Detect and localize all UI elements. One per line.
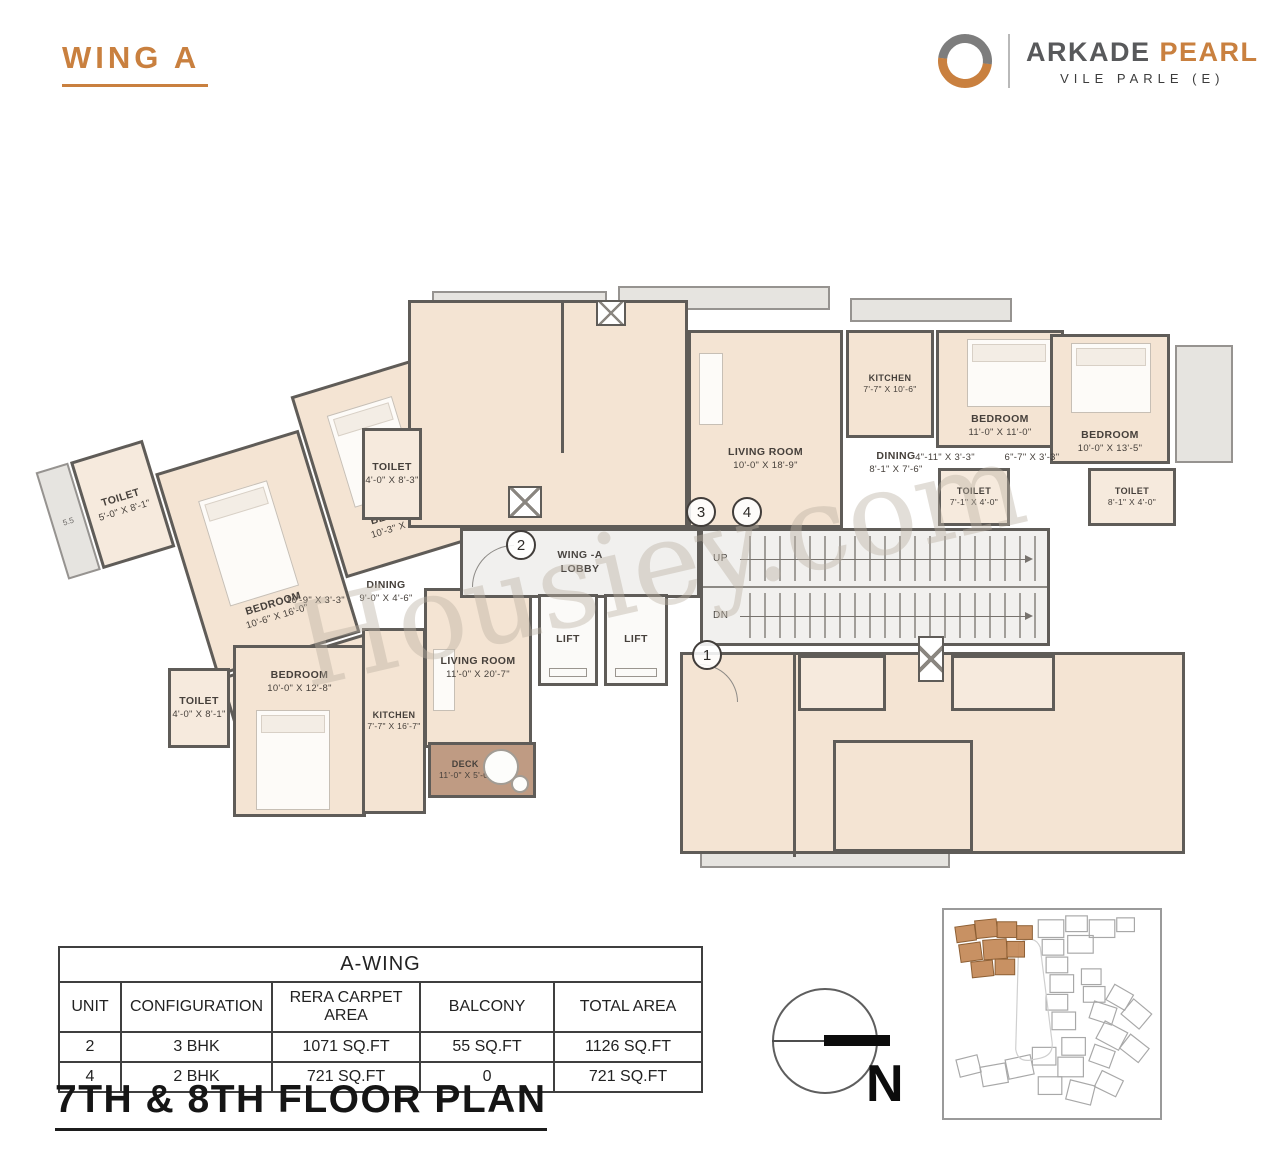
- room-kitchen: KITCHEN7'-7" X 16'-7": [362, 628, 426, 814]
- area-table: A-WING UNIT CONFIGURATION RERA CARPET AR…: [58, 946, 703, 1093]
- room-dims: 7'-1" X 4'-0": [950, 497, 998, 508]
- room-dims: 8'-1" X 4'-0": [1108, 497, 1156, 508]
- staircase: UP DN: [700, 528, 1050, 646]
- balcony-ledge: [1175, 345, 1233, 463]
- sofa-icon: [699, 353, 723, 425]
- cell-balcony: 55 SQ.FT: [420, 1032, 554, 1062]
- room-bedroom: BEDROOM10'-0" X 12'-8": [233, 645, 366, 817]
- lobby-label: WING -A: [557, 549, 602, 563]
- dn-label: DN: [713, 610, 728, 621]
- room-label: TOILET: [172, 695, 225, 709]
- site-key-plan: [942, 908, 1162, 1120]
- brand-text: ARKADE PEARL VILE PARLE (E): [1026, 37, 1259, 86]
- room-dims: 6"-7" X 3'-3": [1005, 452, 1060, 464]
- interior-room: [833, 740, 973, 852]
- lift-2: LIFT: [604, 594, 668, 686]
- bed-icon: [198, 480, 299, 606]
- duct-shaft-icon: [596, 300, 626, 326]
- up-label: UP: [713, 553, 728, 564]
- room-dims: 11'-0" X 20'-7": [441, 669, 516, 681]
- room-label: TOILET: [365, 461, 418, 475]
- room-label: TOILET: [1108, 486, 1156, 498]
- compass-needle: [824, 1035, 890, 1046]
- room-label: KITCHEN: [863, 373, 916, 385]
- room-dims: 4'-0" X 8'-1": [172, 709, 225, 721]
- unit-marker-1: 1: [692, 640, 722, 670]
- cell-total-area: 1126 SQ.FT: [554, 1032, 702, 1062]
- stair-flight-up: UP: [703, 531, 1047, 586]
- bed-icon: [967, 339, 1051, 407]
- compass-icon: [772, 988, 878, 1094]
- room-dims: 10'-0" X 13'-5": [1078, 443, 1143, 455]
- brand-name-secondary: PEARL: [1160, 37, 1259, 67]
- col-header-unit: UNIT: [59, 982, 121, 1032]
- room-living: LIVING ROOM10'-0" X 18'-9": [688, 330, 843, 528]
- north-label: N: [866, 1054, 904, 1114]
- room-label: TOILET: [950, 486, 998, 498]
- unit-marker-4: 4: [732, 497, 762, 527]
- table-row: 2 3 BHK 1071 SQ.FT 55 SQ.FT 1126 SQ.FT: [59, 1032, 702, 1062]
- logo-divider: [1008, 34, 1010, 88]
- room-toilet: TOILET7'-1" X 4'-0": [938, 468, 1010, 526]
- table-title: A-WING: [59, 947, 702, 982]
- room-dims: 4'-0" X 8'-3": [365, 475, 418, 487]
- brand-name: ARKADE PEARL: [1026, 37, 1259, 68]
- duct-shaft-icon: [918, 636, 944, 682]
- col-header-balcony: BALCONY: [420, 982, 554, 1032]
- bed-icon: [1071, 343, 1151, 413]
- room-bedroom: BEDROOM11'-0" X 11'-0": [936, 330, 1064, 448]
- room-deck: DECK11'-0" X 5'-0": [428, 742, 536, 798]
- lift-label: LIFT: [556, 633, 580, 647]
- cell-rera-area: 1071 SQ.FT: [272, 1032, 420, 1062]
- stair-steps: [736, 536, 1037, 581]
- room-unlabeled: [408, 300, 688, 528]
- brand-name-primary: ARKADE: [1026, 37, 1151, 67]
- balcony-ledge: [700, 852, 950, 868]
- room-label: DINING: [359, 579, 412, 593]
- interior-wall: [793, 655, 796, 857]
- room-dims: 7'-7" X 10'-6": [863, 384, 916, 395]
- room-label: LIVING ROOM: [728, 446, 803, 460]
- stair-steps: [736, 593, 1037, 638]
- cell-configuration: 3 BHK: [121, 1032, 272, 1062]
- room-label: BEDROOM: [968, 413, 1031, 427]
- ledge-label: 5.5: [62, 515, 75, 527]
- room-dining: DINING9'-0" X 4'-6": [352, 560, 420, 624]
- brand-logo: ARKADE PEARL VILE PARLE (E): [938, 34, 1259, 88]
- room-dims: 10'-9" X 3'-3": [286, 595, 345, 607]
- col-header-rera-carpet-area: RERA CARPET AREA: [272, 982, 420, 1032]
- room-toilet: TOILET4'-0" X 8'-3": [362, 428, 422, 520]
- room-dims: 11'-0" X 11'-0": [968, 427, 1031, 439]
- room-kitchen: KITCHEN7'-7" X 10'-6": [846, 330, 934, 438]
- deck-stool-icon: [511, 775, 529, 793]
- room-passage: 6"-7" X 3'-3": [986, 448, 1078, 468]
- room-label: BEDROOM: [267, 669, 332, 683]
- room-dims: 7'-7" X 16'-7": [367, 721, 420, 732]
- unit-marker-3: 3: [686, 497, 716, 527]
- room-passage: 4"-11" X 3'-3": [902, 448, 988, 468]
- interior-room: [798, 655, 886, 711]
- brand-location: VILE PARLE (E): [1060, 71, 1224, 86]
- unit-marker-2: 2: [506, 530, 536, 560]
- site-key-plan-drawing: [944, 910, 1160, 1118]
- bed-icon: [256, 710, 330, 810]
- room-dims: 10'-0" X 18'-9": [728, 460, 803, 472]
- lobby-label: LOBBY: [557, 563, 602, 577]
- col-header-configuration: CONFIGURATION: [121, 982, 272, 1032]
- room-label: LIVING ROOM: [441, 655, 516, 669]
- cell-total-area: 721 SQ.FT: [554, 1062, 702, 1092]
- floor-plan-page: WING A ARKADE PEARL VILE PARLE (E) 5.5 T…: [0, 0, 1280, 1173]
- room-label: BEDROOM: [1078, 429, 1143, 443]
- compass-line: [772, 1040, 830, 1042]
- lift-1: LIFT: [538, 594, 598, 686]
- balcony-ledge: [850, 298, 1012, 322]
- room-dims: 9'-0" X 4'-6": [359, 593, 412, 605]
- col-header-total-area: TOTAL AREA: [554, 982, 702, 1032]
- room-living: LIVING ROOM11'-0" X 20'-7": [424, 588, 532, 748]
- duct-shaft-icon: [508, 486, 542, 518]
- room-label: KITCHEN: [367, 710, 420, 722]
- room-dims: 4"-11" X 3'-3": [915, 452, 975, 464]
- room-dims: 10'-0" X 12'-8": [267, 683, 332, 695]
- room-unlabeled: [680, 652, 1185, 854]
- arkade-logo-icon: [927, 23, 1003, 99]
- lift-label: LIFT: [624, 633, 648, 647]
- interior-room: [951, 655, 1055, 711]
- stair-flight-down: DN: [703, 586, 1047, 643]
- room-toilet: TOILET4'-0" X 8'-1": [168, 668, 230, 748]
- room-bedroom: BEDROOM10'-0" X 13'-5": [1050, 334, 1170, 464]
- room-toilet: TOILET8'-1" X 4'-0": [1088, 468, 1176, 526]
- wing-title: WING A: [62, 40, 208, 87]
- floor-plan-title: 7TH & 8TH FLOOR PLAN: [55, 1078, 547, 1131]
- cell-unit: 2: [59, 1032, 121, 1062]
- interior-wall: [561, 303, 564, 453]
